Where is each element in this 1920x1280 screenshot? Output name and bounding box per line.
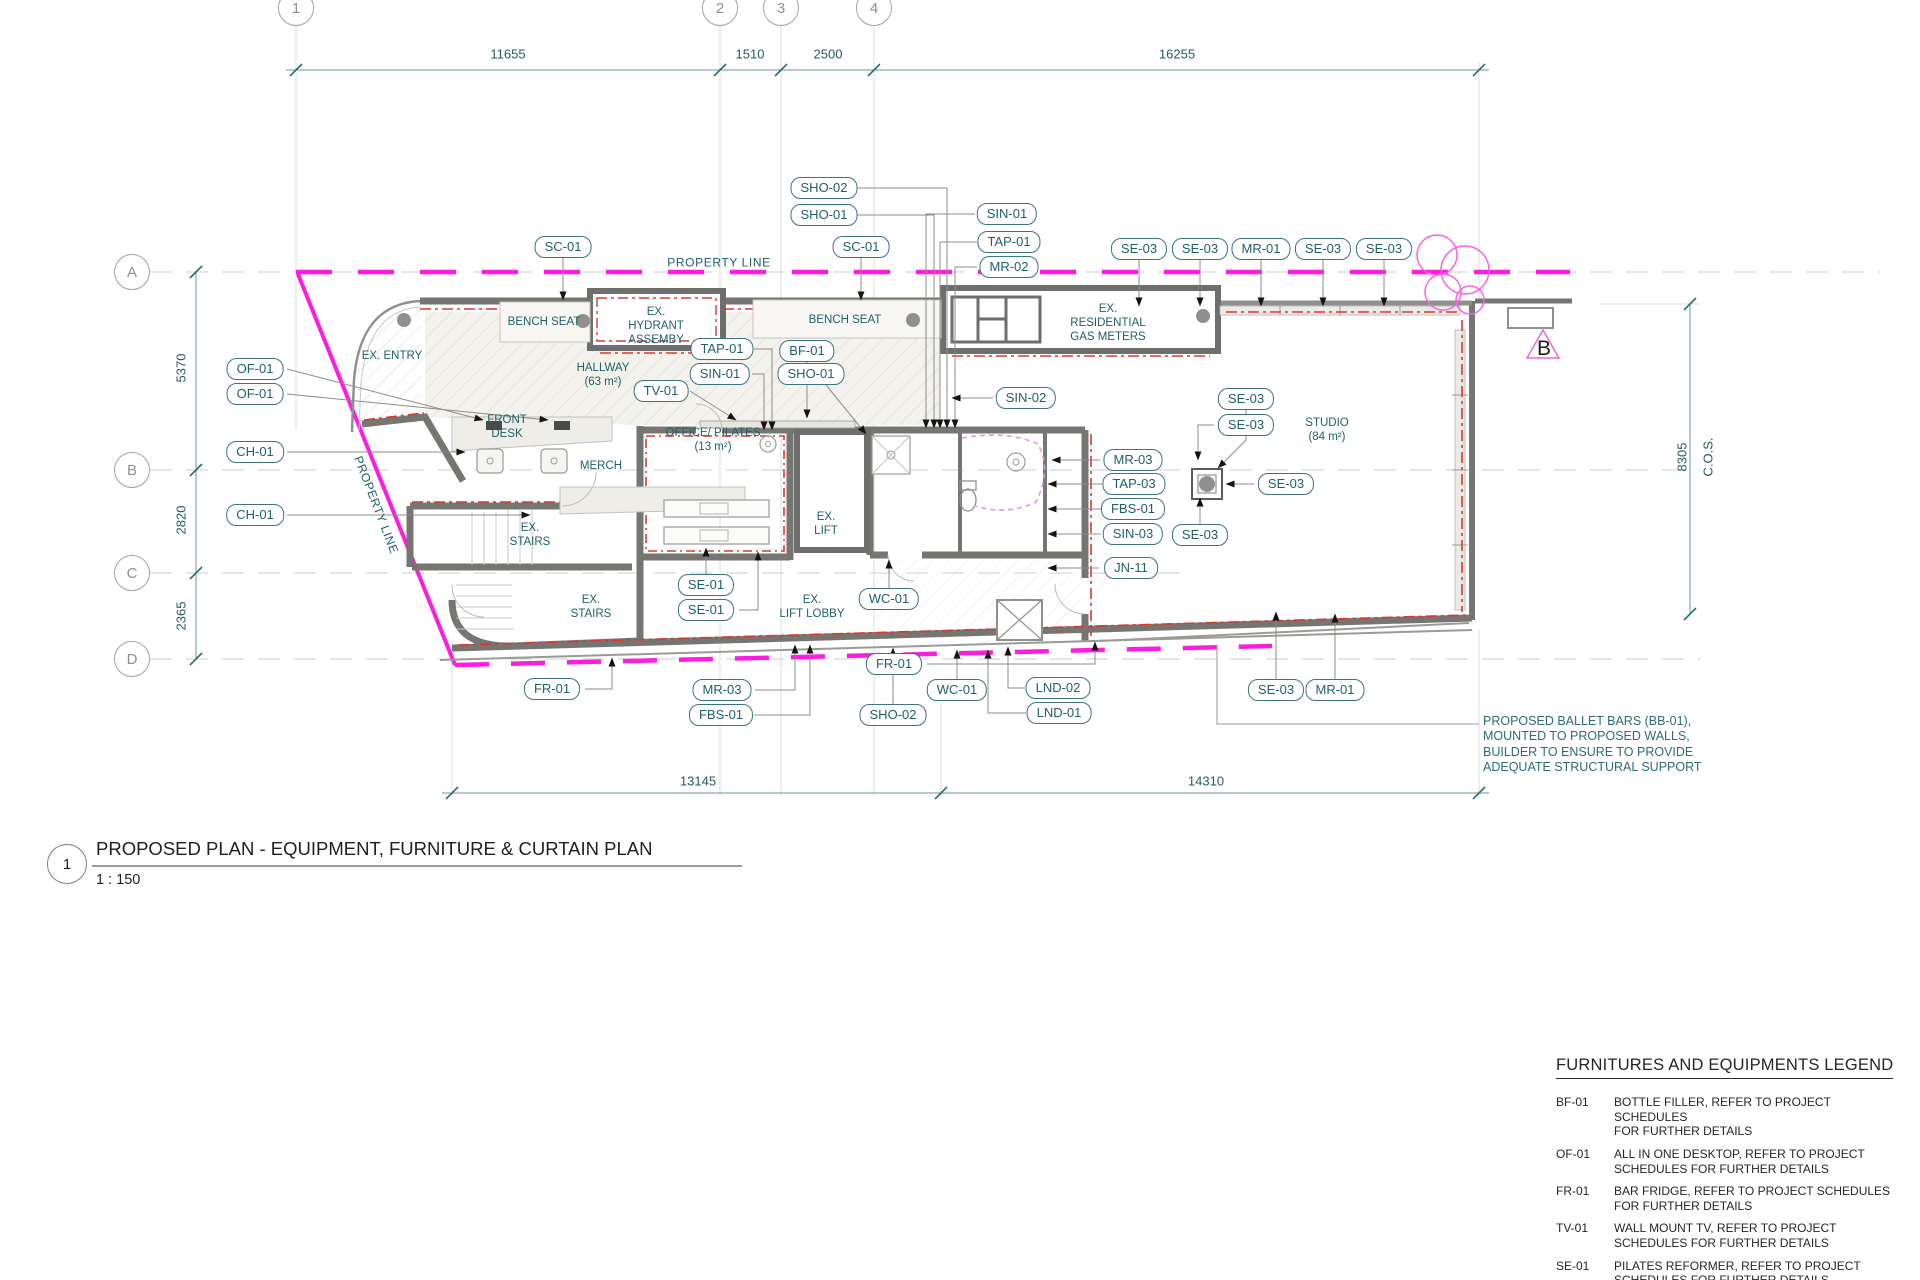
tag-fr-01: FR-01 [524, 678, 580, 700]
label-b: B [1537, 336, 1551, 362]
dimension-2500: 2500 [814, 47, 843, 62]
title-block: PROPOSED PLAN - EQUIPMENT, FURNITURE & C… [92, 838, 742, 888]
tag-tap-01: TAP-01 [977, 231, 1040, 253]
label-ex-entry: EX. ENTRY [362, 349, 423, 363]
dimension-11655: 11655 [490, 47, 525, 62]
tag-jn-11: JN-11 [1104, 557, 1158, 579]
dimension-8305: 8305 [1675, 443, 1690, 472]
dimension-14310: 14310 [1188, 774, 1224, 789]
tag-bf-01: BF-01 [779, 340, 834, 362]
legend-code: SE-01 [1556, 1259, 1614, 1280]
label-ex-residential-gas-meters: EX. RESIDENTIAL GAS METERS [1070, 302, 1145, 344]
tag-of-01: OF-01 [227, 383, 284, 405]
tag-tap-03: TAP-03 [1102, 473, 1165, 495]
label-ex-stairs: EX. STAIRS [571, 593, 612, 621]
label-ex-stairs: EX. STAIRS [510, 521, 551, 549]
grid-row-b: B [114, 452, 150, 488]
tag-mr-03: MR-03 [692, 679, 751, 701]
tag-se-03: SE-03 [1218, 414, 1274, 436]
label-property-line: PROPERTY LINE [667, 256, 770, 271]
tag-wc-01: WC-01 [859, 588, 919, 610]
dimension-c-o-s: C.O.S. [1701, 437, 1716, 476]
tag-sin-02: SIN-02 [996, 387, 1056, 409]
tag-sin-01: SIN-01 [690, 363, 750, 385]
tag-sc-01: SC-01 [833, 236, 890, 258]
tag-sho-02: SHO-02 [791, 177, 858, 199]
tag-mr-02: MR-02 [979, 256, 1038, 278]
tag-mr-01: MR-01 [1231, 238, 1290, 260]
tag-tap-01: TAP-01 [690, 338, 753, 360]
legend-description: ALL IN ONE DESKTOP, REFER TO PROJECT SCH… [1614, 1147, 1865, 1176]
legend-code: BF-01 [1556, 1095, 1614, 1139]
grid-row-c: C [114, 555, 150, 591]
label-bench-seat: BENCH SEAT [508, 315, 581, 329]
tag-sc-01: SC-01 [535, 236, 592, 258]
tag-sho-01: SHO-01 [791, 204, 858, 226]
tag-se-03: SE-03 [1356, 238, 1412, 260]
tag-se-03: SE-03 [1258, 473, 1314, 495]
dimension-13145: 13145 [680, 774, 716, 789]
grid-row-a: A [114, 254, 150, 290]
legend-description: PILATES REFORMER, REFER TO PROJECT SCHED… [1614, 1259, 1861, 1280]
legend-description: WALL MOUNT TV, REFER TO PROJECT SCHEDULE… [1614, 1221, 1837, 1250]
dimension-1510: 1510 [736, 47, 765, 62]
tag-se-03: SE-03 [1248, 679, 1304, 701]
legend-heading: FURNITURES AND EQUIPMENTS LEGEND [1556, 1056, 1893, 1079]
tag-sin-01: SIN-01 [977, 203, 1037, 225]
tag-se-03: SE-03 [1172, 524, 1228, 546]
tag-sin-03: SIN-03 [1103, 523, 1163, 545]
legend-item-of-01: OF-01ALL IN ONE DESKTOP, REFER TO PROJEC… [1556, 1147, 1900, 1176]
tag-lnd-02: LND-02 [1026, 677, 1091, 699]
grid-row-d: D [114, 641, 150, 677]
tag-se-01: SE-01 [678, 574, 734, 596]
label-hallway-63-m: HALLWAY (63 m²) [577, 361, 630, 389]
label-ex-lift: EX. LIFT [814, 510, 838, 538]
tag-sho-02: SHO-02 [860, 704, 927, 726]
tag-ch-01: CH-01 [226, 441, 284, 463]
label-bench-seat: BENCH SEAT [809, 313, 882, 327]
tag-se-01: SE-01 [678, 599, 734, 621]
tag-se-03: SE-03 [1111, 238, 1167, 260]
dimension-2365: 2365 [174, 602, 189, 631]
tag-se-03: SE-03 [1218, 388, 1274, 410]
legend-item-fr-01: FR-01BAR FRIDGE, REFER TO PROJECT SCHEDU… [1556, 1184, 1900, 1213]
legend-item-tv-01: TV-01WALL MOUNT TV, REFER TO PROJECT SCH… [1556, 1221, 1900, 1250]
tag-fr-01: FR-01 [866, 653, 922, 675]
legend-code: FR-01 [1556, 1184, 1614, 1213]
tag-mr-03: MR-03 [1103, 449, 1162, 471]
legend-code: OF-01 [1556, 1147, 1614, 1176]
tag-sho-01: SHO-01 [778, 363, 845, 385]
tag-fbs-01: FBS-01 [1101, 498, 1165, 520]
label-front-desk: FRONT DESK [487, 413, 527, 441]
view-title: PROPOSED PLAN - EQUIPMENT, FURNITURE & C… [92, 838, 742, 867]
tag-of-01: OF-01 [227, 358, 284, 380]
legend-item-bf-01: BF-01BOTTLE FILLER, REFER TO PROJECT SCH… [1556, 1095, 1900, 1139]
floor-plan-sheet: .ldr{marker-end:url(#arw);} SC-01SC-01SH… [0, 0, 1920, 1280]
label-merch: MERCH [580, 459, 622, 473]
furniture-equipment-legend: FURNITURES AND EQUIPMENTS LEGEND BF-01BO… [1556, 1056, 1900, 1280]
label-ex-hydrant-assemby: EX. HYDRANT ASSEMBY [628, 305, 684, 347]
label-studio-84-m: STUDIO (84 m²) [1305, 416, 1348, 444]
tag-se-03: SE-03 [1295, 238, 1351, 260]
tag-mr-01: MR-01 [1305, 679, 1364, 701]
tag-se-03: SE-03 [1172, 238, 1228, 260]
tag-ch-01: CH-01 [226, 504, 284, 526]
dimension-5370: 5370 [174, 354, 189, 383]
dimension-16255: 16255 [1159, 47, 1195, 62]
view-scale: 1 : 150 [92, 872, 742, 888]
label-ex-lift-lobby: EX. LIFT LOBBY [780, 593, 845, 621]
ballet-bar-note: PROPOSED BALLET BARS (BB-01), MOUNTED TO… [1483, 714, 1713, 775]
dimension-2820: 2820 [174, 506, 189, 535]
legend-rows: BF-01BOTTLE FILLER, REFER TO PROJECT SCH… [1556, 1095, 1900, 1280]
legend-code: TV-01 [1556, 1221, 1614, 1250]
tag-lnd-01: LND-01 [1027, 702, 1092, 724]
tag-fbs-01: FBS-01 [689, 704, 753, 726]
legend-description: BAR FRIDGE, REFER TO PROJECT SCHEDULES F… [1614, 1184, 1890, 1213]
legend-item-se-01: SE-01PILATES REFORMER, REFER TO PROJECT … [1556, 1259, 1900, 1280]
view-number-bubble: 1 [47, 844, 87, 884]
label-office-pilates-13-m: OFFICE/ PILATES (13 m²) [666, 426, 761, 454]
legend-description: BOTTLE FILLER, REFER TO PROJECT SCHEDULE… [1614, 1095, 1900, 1139]
tag-wc-01: WC-01 [927, 679, 987, 701]
tag-tv-01: TV-01 [634, 380, 689, 402]
